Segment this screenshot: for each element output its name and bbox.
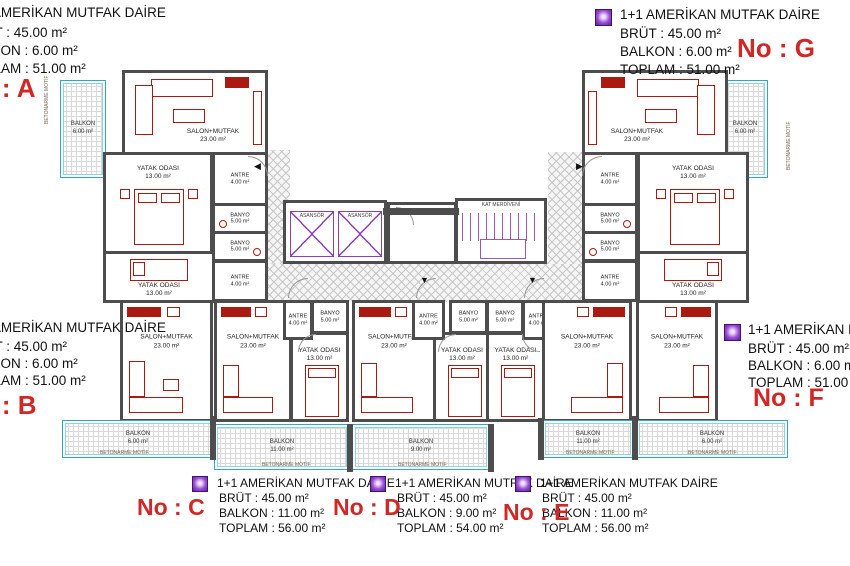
unit-marker-icon [370,476,386,492]
room-salon-f: SALON+MUTFAK23.00 m² [636,300,718,422]
furniture-appliance [577,307,589,317]
edge-note: BETONARME MOTİF [100,450,149,456]
furniture-pillow [451,368,479,378]
furniture-kitchen-counter [359,307,391,317]
room-bedroom-f: YATAK ODASI13.00 m² [637,251,749,303]
unit-toplam: TOPLAM : 56.00 m² [219,521,325,535]
unit-balkon: BALKON : 6.00 m² [0,43,78,58]
wall-stub [210,416,216,460]
room-bedroom-g: YATAK ODASI13.00 m² [637,152,749,254]
furniture-table [645,109,677,123]
furniture-sofa [693,365,709,397]
room-bedroom-b: YATAK ODASI13.00 m² [103,251,215,303]
edge-note: BETONARME MOTİF [398,462,447,468]
furniture-sofa [361,397,413,413]
unit-no: No : A [0,73,36,104]
furniture-kitchen-counter [601,77,625,88]
room-antre-b: ANTRE4.00 m² [212,260,268,302]
furniture-appliance [255,307,267,317]
furniture-sofa [135,85,153,135]
furniture-sofa [607,363,623,397]
entry-arrow: ▶ [576,162,583,171]
furniture-pillow [161,193,180,203]
staircase-label: KAT MERDİVENİ [458,202,544,208]
room-banyo-g: BANYO5.00 m² [582,203,638,234]
furniture-kitchen-counter [593,307,625,317]
furniture-kitchen-strip [588,91,597,145]
wall-stub [538,418,544,460]
furniture-toilet [253,248,261,256]
furniture-sofa [223,365,239,397]
furniture-appliance [665,307,677,317]
wall-stub [347,424,353,472]
balcony-a: BALKON6.00 m² [60,80,106,178]
unit-no: No : E [503,499,569,526]
room-salon-a: SALON+MUTFAK23.00 m² [122,70,268,158]
room-antre-c: ANTRE4.00 m² [283,300,313,340]
furniture-pillow [138,193,157,203]
furniture-sofa [659,397,709,413]
room-salon-c: SALON+MUTFAK23.00 m² [214,300,292,422]
wall-stub [488,424,494,472]
room-banyo-b: BANYO5.00 m² [212,231,268,262]
room-banyo-d: BANYO5.00 m² [449,300,488,334]
furniture-pillow [504,368,532,378]
unit-title: 1+1 AMERİKAN MUTFAK DAİRE [217,476,395,490]
elevator-2-label: ASANSÖR [339,213,381,219]
unit-no: No : D [333,494,401,521]
unit-title: 1+1 AMERİKAN MUTFAK DAİRE [0,320,166,335]
furniture-appliance [395,307,407,317]
unit-balkon: BALKON : 6.00 m² [748,358,850,373]
room-banyo-c: BANYO5.00 m² [311,300,349,334]
furniture-sofa [129,361,145,397]
unit-no: No : G [737,33,815,64]
room-salon-e: SALON+MUTFAK23.00 m² [542,300,632,422]
furniture-sofa [129,397,183,413]
unit-title: 1+1 AMERİKAN MUTFAK DAİRE [0,5,166,20]
edge-note: BETONARME MOTİF [688,450,737,456]
unit-marker-icon [724,324,741,341]
entry-arrow: ▼ [528,276,537,285]
elevator-2: ASANSÖR [338,211,382,257]
unit-toplam: TOPLAM : 51.00 m² [620,62,740,77]
room-salon-b: SALON+MUTFAK23.00 m² [120,300,213,422]
room-bedroom-a: YATAK ODASI13.00 m² [103,152,213,254]
unit-marker-icon [595,9,612,26]
elevator-1-label: ASANSÖR [291,213,333,219]
unit-marker-icon [192,476,208,492]
room-antre-d: ANTRE4.00 m² [412,300,445,340]
wall-stub [632,416,638,460]
room-banyo-f: BANYO5.00 m² [582,231,638,262]
unit-brut: BRÜT : 45.00 m² [620,26,721,41]
furniture-sofa [637,79,699,97]
staircase: KAT MERDİVENİ [455,198,547,264]
floor-plan-page: ATABERK ASANSÖR ASANSÖR KAT MERDİVENİ BA… [0,0,850,566]
furniture-nightstand [656,189,666,199]
unit-balkon: BALKON : 11.00 m² [219,506,324,520]
furniture-nightstand [120,189,130,199]
stair-landing [480,239,526,259]
entry-arrow: ◀ [254,162,261,171]
room-antre-f: ANTRE4.00 m² [582,260,638,302]
furniture-sofa [697,85,715,135]
stair-treads [462,213,540,241]
furniture-kitchen-counter [127,307,161,317]
unit-brut: BRÜT : 45.00 m² [748,341,849,356]
furniture-pillow [707,262,719,276]
unit-brut: BRÜT : 45.00 m² [0,339,67,354]
unit-no: No : F [753,384,824,413]
unit-toplam: TOPLAM : 54.00 m² [397,521,503,535]
edge-note: BETONARME MOTİF [262,462,311,468]
furniture-kitchen-counter [221,307,251,317]
furniture-pillow [697,193,716,203]
unit-title: 1+1 AMERİKAN MUTFAK DAİRE [540,476,718,490]
unit-balkon: BALKON : 6.00 m² [0,356,78,371]
unit-toplam: TOPLAM : 51.00 m² [0,373,86,388]
unit-balkon: BALKON : 6.00 m² [620,44,732,59]
unit-title: 1+1 AMERİKAN MUTFAK DAİRE [620,7,820,22]
furniture-appliance [167,307,180,317]
furniture-pillow [308,368,336,378]
unit-marker-icon [515,476,531,492]
furniture-nightstand [188,189,198,199]
unit-no: No : C [137,494,205,521]
furniture-nightstand [724,189,734,199]
room-salon-g: SALON+MUTFAK23.00 m² [582,70,728,158]
room-banyo-e: BANYO5.00 m² [486,300,524,334]
furniture-sofa [361,363,377,397]
furniture-kitchen-strip [253,91,262,145]
edge-note: BETONARME MOTİF [566,450,615,456]
entry-arrow: ▼ [420,276,429,285]
wall-lobby-top [383,208,459,215]
furniture-pillow [674,193,693,203]
unit-brut: BRÜT : 45.00 m² [397,491,487,505]
furniture-toilet [623,220,631,228]
furniture-sofa [151,79,213,97]
furniture-sofa [223,397,273,413]
unit-brut: BRÜT : 45.00 m² [0,25,67,40]
elevator-1: ASANSÖR [290,211,334,257]
furniture-table [163,379,179,391]
furniture-kitchen-counter [225,77,249,88]
furniture-table [173,109,205,123]
unit-brut: BRÜT : 45.00 m² [219,491,309,505]
edge-note: BETONARME MOTİF [786,121,792,170]
furniture-toilet [589,248,597,256]
furniture-kitchen-counter [681,307,711,317]
edge-note: BETONARME MOTİF [44,75,50,124]
room-banyo-a: BANYO5.00 m² [212,203,268,234]
unit-no: No : B [0,390,37,421]
furniture-pillow [133,262,145,276]
furniture-toilet [219,220,227,228]
unit-title: 1+1 AMERİKAN MUTFAK DAİRE [748,322,850,337]
unit-balkon: BALKON : 9.00 m² [397,506,496,520]
furniture-sofa [571,397,623,413]
elevator-core: ASANSÖR ASANSÖR [283,200,387,264]
